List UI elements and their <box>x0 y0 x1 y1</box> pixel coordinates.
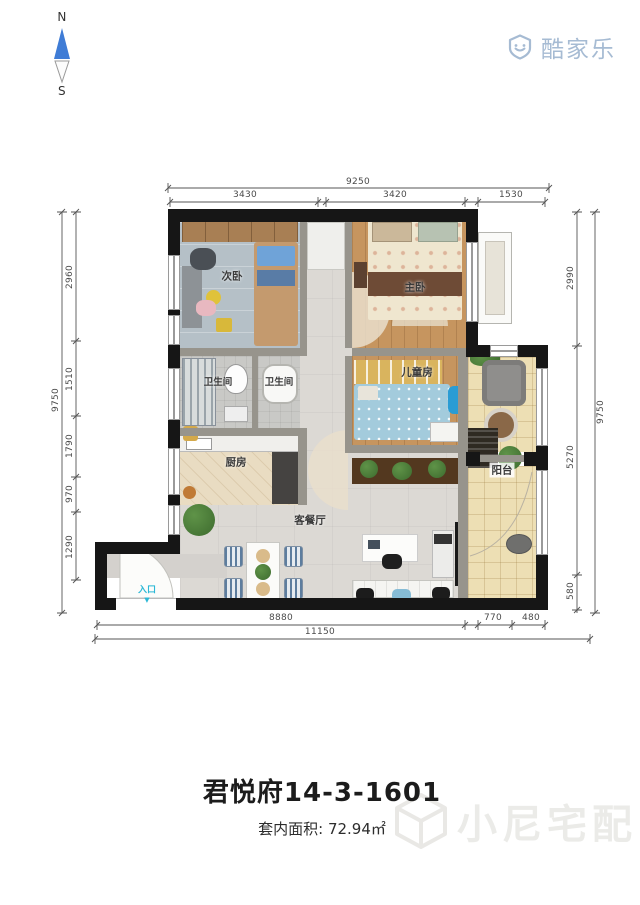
brand-logo: 酷家乐 <box>506 30 616 64</box>
dim-top-seg: 3430 <box>233 190 257 200</box>
room-label-master-bedroom: 主卧 <box>405 280 426 295</box>
wall <box>480 455 528 462</box>
laptop <box>368 540 380 549</box>
shelf-item <box>434 534 452 544</box>
hall-closet <box>307 222 345 270</box>
room-label-living-dining: 客餐厅 <box>294 513 326 528</box>
exterior-wall <box>95 542 180 554</box>
dining-stool <box>256 549 270 563</box>
watermark-text: 小尼宅配 <box>457 792 637 850</box>
compass-south-label: S <box>58 84 66 98</box>
dim-left-total: 9750 <box>51 388 61 412</box>
wall <box>180 428 307 436</box>
plan-area: 套内面积: 72.94㎡ <box>258 818 386 839</box>
kids-pillow <box>358 386 378 400</box>
room-label-kitchen: 厨房 <box>226 455 247 470</box>
plan-area-label: 套内面积: <box>258 820 323 838</box>
balcony-lower-floor <box>468 466 536 598</box>
bay-window-sill <box>485 241 505 315</box>
dim-right-seg: 580 <box>566 582 576 600</box>
compass-north-label: N <box>57 10 66 24</box>
room-label-balcony: 阳台 <box>490 463 515 478</box>
dim-bottom-total: 11150 <box>305 627 335 637</box>
master-pillow-right <box>418 222 458 242</box>
nightstand <box>354 262 367 288</box>
dim-left-seg: 1510 <box>65 367 75 391</box>
pink-cushion <box>196 300 216 316</box>
desk-chair-black <box>382 554 402 569</box>
window <box>536 368 548 446</box>
floorplan-page: N S 酷家乐 <box>0 0 640 905</box>
wall <box>345 445 466 453</box>
kitchen-pot <box>183 486 196 499</box>
plant-icon <box>428 460 446 478</box>
window <box>168 505 180 535</box>
dining-chair <box>284 578 303 599</box>
dim-bottom-seg: 480 <box>522 613 540 623</box>
master-pillow-left <box>372 222 412 242</box>
dining-chair <box>284 546 303 567</box>
wall <box>352 348 466 356</box>
wardrobe <box>182 222 298 242</box>
dim-right-total: 9750 <box>596 400 606 424</box>
bathroom-sink <box>224 406 248 422</box>
wall <box>252 356 258 428</box>
dining-chair <box>224 546 243 567</box>
second-bed-blanket <box>257 270 295 286</box>
wall <box>300 222 307 356</box>
room-label-second-bedroom: 次卧 <box>222 269 243 284</box>
balcony-armchair <box>482 360 526 406</box>
window <box>536 470 548 555</box>
brand-shield-icon <box>506 33 534 61</box>
wall <box>345 356 352 445</box>
dining-chair <box>224 578 243 599</box>
wall-pier <box>466 452 480 466</box>
chair-dark <box>190 248 216 270</box>
table-plant <box>255 564 271 580</box>
entrance-label: 入口 <box>138 583 156 596</box>
shower <box>182 358 216 426</box>
dim-right-seg: 2990 <box>566 266 576 290</box>
second-bed-pillow <box>257 246 295 266</box>
room-label-bathroom-left: 卫生间 <box>204 374 233 388</box>
window <box>168 448 180 495</box>
dim-bottom-seg: 770 <box>484 613 502 623</box>
window <box>168 315 180 345</box>
room-label-kids-room: 儿童房 <box>401 365 433 380</box>
wall <box>180 348 305 356</box>
desk-second-bedroom <box>182 266 202 328</box>
dim-left-seg: 1290 <box>65 535 75 559</box>
plan-title: 君悦府14-3-1601 <box>203 772 441 809</box>
wall <box>298 428 307 505</box>
room-label-bathroom-right: 卫生间 <box>265 374 294 388</box>
wall <box>345 222 352 348</box>
entrance-arrow-icon: ▼ <box>144 596 149 604</box>
dim-top-seg: 1530 <box>499 190 523 200</box>
compass-needle-icon <box>52 26 72 84</box>
wall <box>458 356 468 598</box>
window <box>466 242 478 322</box>
dim-right-seg: 5270 <box>566 445 576 469</box>
fridge-cabinet <box>272 452 298 504</box>
bay-window <box>478 232 512 324</box>
dim-top-seg: 3420 <box>383 190 407 200</box>
dim-top-total: 9250 <box>346 177 370 187</box>
garden-stone <box>506 534 532 554</box>
entry-mat <box>107 554 227 578</box>
plant-icon <box>360 460 378 478</box>
window <box>490 345 518 357</box>
window <box>168 255 180 310</box>
window <box>168 368 180 420</box>
dim-left-seg: 1790 <box>65 434 75 458</box>
brand-name: 酷家乐 <box>541 30 616 64</box>
living-plant-bush <box>183 504 215 536</box>
yellow-stool <box>216 318 232 332</box>
dim-bottom-seg: 8880 <box>269 613 293 623</box>
wall-pier <box>524 452 548 466</box>
dim-left-seg: 970 <box>65 485 75 503</box>
dim-left-seg: 2960 <box>65 265 75 289</box>
plan-area-value: 72.94㎡ <box>328 820 386 838</box>
dining-stool <box>256 582 270 596</box>
plant-icon <box>392 462 412 480</box>
exterior-wall <box>168 209 478 222</box>
